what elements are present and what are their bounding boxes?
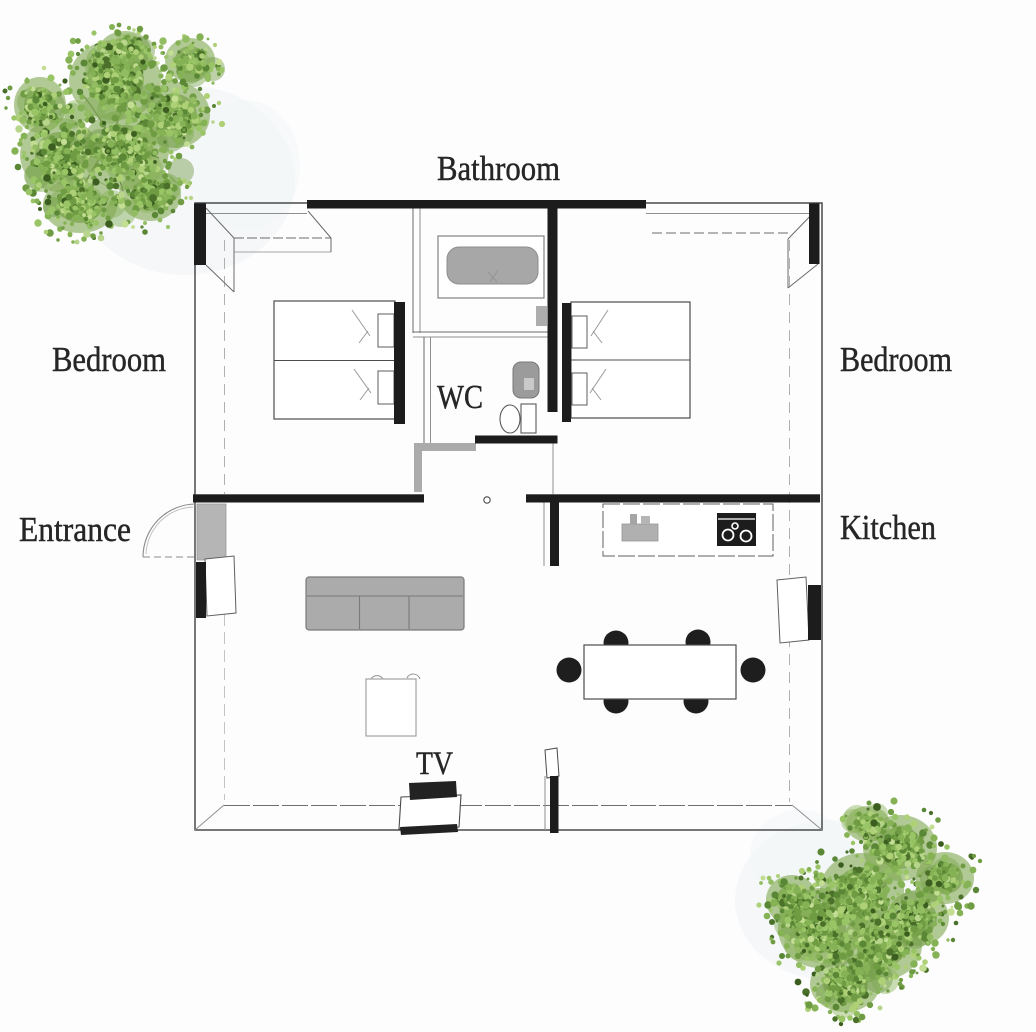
svg-text:Entrance: Entrance xyxy=(19,510,131,549)
svg-text:TV: TV xyxy=(416,746,453,782)
svg-text:Kitchen: Kitchen xyxy=(840,508,936,547)
svg-text:WC: WC xyxy=(437,379,483,416)
svg-text:Bedroom: Bedroom xyxy=(840,340,952,379)
svg-text:Bathroom: Bathroom xyxy=(437,149,560,188)
svg-text:Bedroom: Bedroom xyxy=(52,340,166,379)
